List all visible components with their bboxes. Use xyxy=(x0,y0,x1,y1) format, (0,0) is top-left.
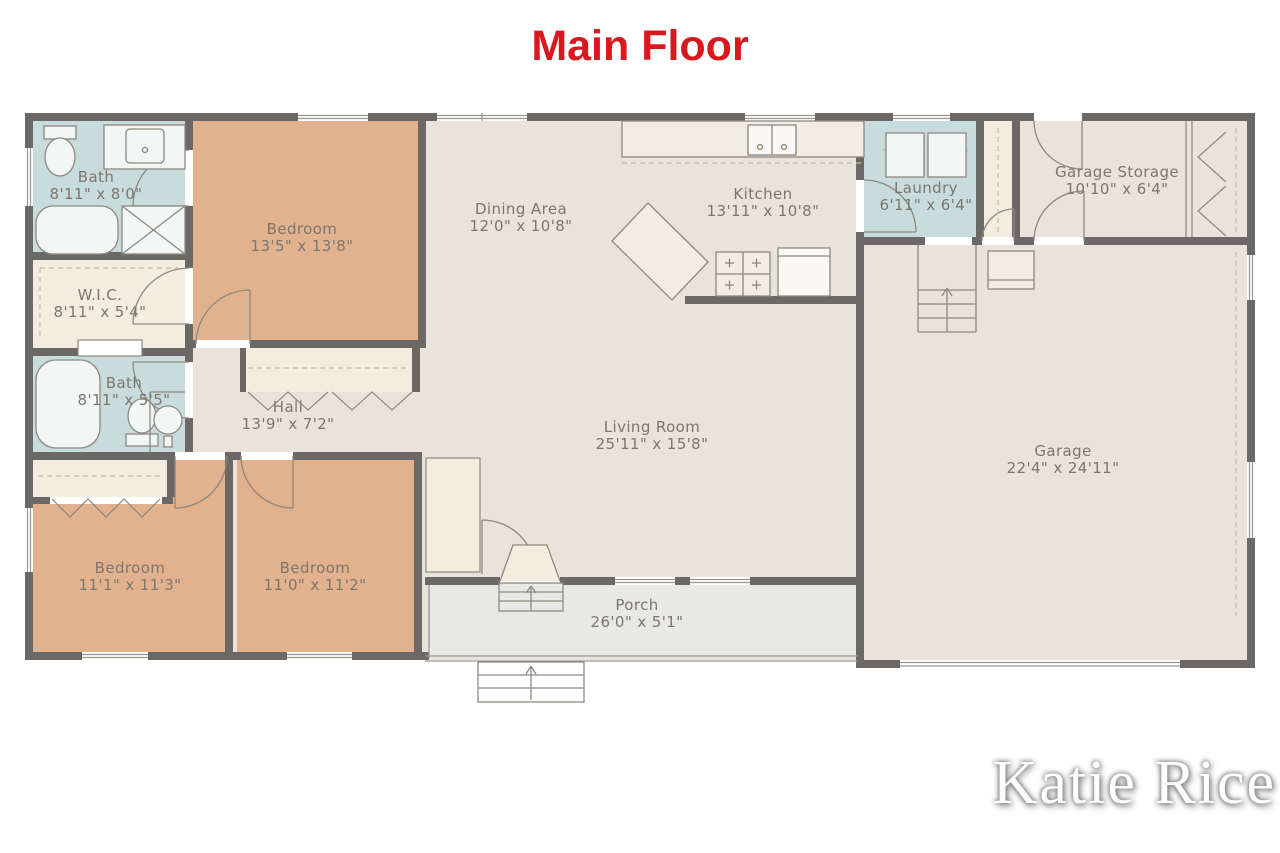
window-dining xyxy=(437,113,527,121)
bedroom-left-entry-floor xyxy=(173,460,225,504)
bedroom-left-closet-floor xyxy=(33,460,165,497)
entry-closet xyxy=(426,458,480,572)
window-garage-upper xyxy=(1247,255,1255,300)
pedestal-sink xyxy=(154,406,182,434)
room-label-living: Living Room25'11" x 15'8" xyxy=(596,419,709,452)
sink-drain xyxy=(143,148,148,153)
floor-plan-page: Main Floor xyxy=(0,0,1280,853)
window-bedroom-left-front xyxy=(82,652,148,660)
dryer xyxy=(928,133,966,177)
room-label-dining: Dining Area12'0" x 10'8" xyxy=(470,201,573,234)
window-garage-side xyxy=(1247,462,1255,538)
window-bedroom-left-side xyxy=(25,508,33,572)
bathtub xyxy=(36,206,118,254)
room-label-bath-main: Bath8'11" x 8'0" xyxy=(50,169,143,202)
room-label-bedroom-left: Bedroom11'1" x 11'3" xyxy=(79,560,182,593)
room-label-bath-hall: Bath8'11" x 5'5" xyxy=(78,375,171,408)
room-label-kitchen: Kitchen13'11" x 10'8" xyxy=(707,186,820,219)
garage-equipment xyxy=(988,251,1034,289)
window-laundry xyxy=(893,113,950,121)
sink-pedestal xyxy=(164,436,172,447)
room-label-porch: Porch26'0" x 5'1" xyxy=(591,597,684,630)
refrigerator xyxy=(778,248,830,296)
room-label-bedroom-primary: Bedroom13'5" x 13'8" xyxy=(251,221,354,254)
window-kitchen xyxy=(745,113,815,121)
bedroom-middle-floor xyxy=(237,460,414,652)
room-label-bedroom-middle: Bedroom11'0" x 11'2" xyxy=(264,560,367,593)
kitchen-counter xyxy=(622,121,864,157)
room-label-hall: Hall13'9" x 7'2" xyxy=(242,399,335,432)
wic-door-panel xyxy=(78,340,142,356)
window-bedroom-primary xyxy=(298,113,368,121)
window-living-left xyxy=(615,577,675,585)
vanity-sink xyxy=(126,129,164,163)
room-label-garage-storage: Garage Storage10'10" x 6'4" xyxy=(1055,164,1179,197)
room-label-laundry: Laundry6'11" x 6'4" xyxy=(880,180,973,213)
washer xyxy=(886,133,924,177)
toilet-tank xyxy=(44,126,76,139)
hall-closet-floor xyxy=(246,348,412,392)
watermark: Katie Rice xyxy=(993,748,1276,819)
window-bedroom-middle-front xyxy=(287,652,352,660)
window-bath-main xyxy=(25,148,33,206)
window-living-right xyxy=(690,577,750,585)
room-label-garage: Garage22'4" x 24'11" xyxy=(1007,443,1120,476)
room-label-wic: W.I.C.8'11" x 5'4" xyxy=(54,287,147,320)
toilet-tank-2 xyxy=(126,434,158,446)
